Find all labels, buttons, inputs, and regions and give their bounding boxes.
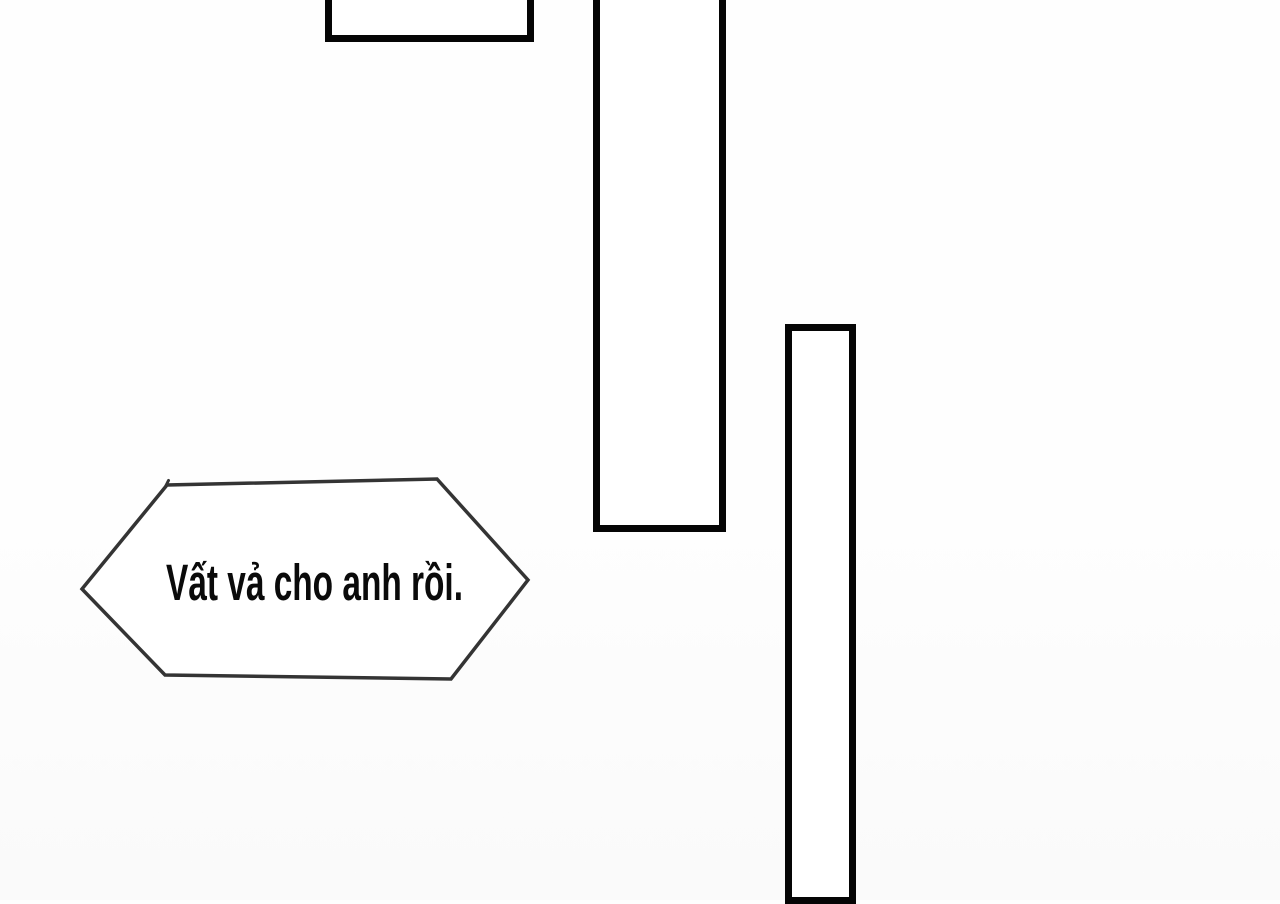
svg-text:Vất vả cho anh rồi.: Vất vả cho anh rồi. (166, 554, 463, 611)
